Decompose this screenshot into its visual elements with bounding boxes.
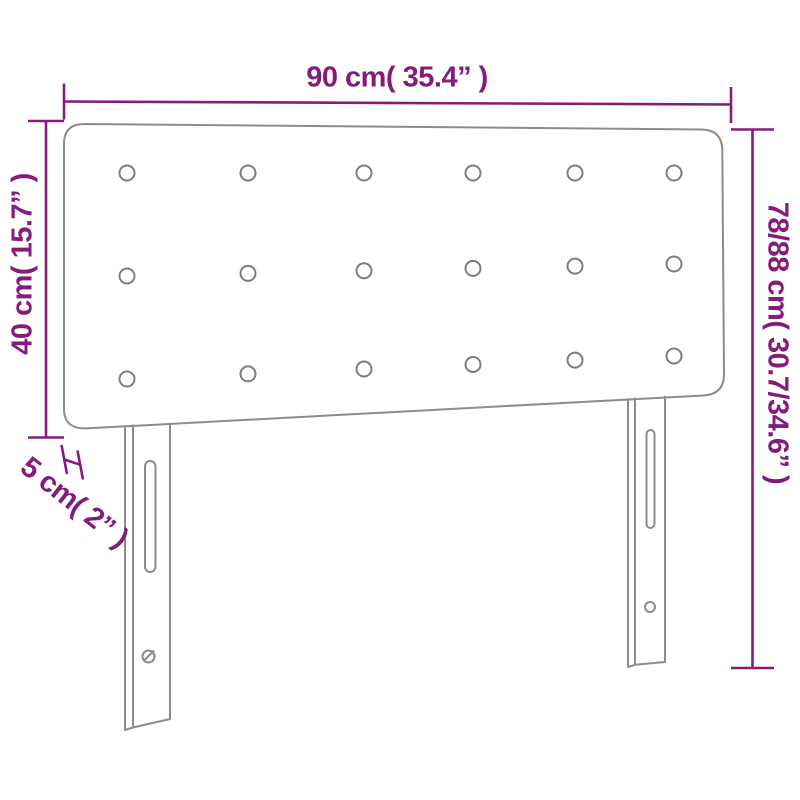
- right-leg-screw-hole: [645, 602, 655, 612]
- tufting-button: [241, 266, 256, 281]
- tufting-button: [120, 372, 135, 387]
- tufting-button: [357, 362, 372, 377]
- tufting-button: [241, 166, 256, 181]
- tufting-button: [466, 166, 481, 181]
- tufting-button: [568, 166, 583, 181]
- left-leg-slot: [145, 461, 156, 572]
- tufting-button: [241, 366, 256, 381]
- tufting-button: [466, 357, 481, 372]
- width-dimension-label: 90 cm( 35.4” ): [306, 62, 488, 95]
- tufting-button: [357, 166, 372, 181]
- tufting-button: [357, 263, 372, 278]
- total-height-dimension-label: 78/88 cm( 30.7/34.6” ): [761, 202, 794, 484]
- headboard-panel: [64, 124, 724, 428]
- tufting-button: [568, 353, 583, 368]
- panel-height-dimension-label: 40 cm( 15.7” ): [7, 173, 40, 355]
- dimension-diagram: 90 cm( 35.4” ) 40 cm( 15.7” ) 78/88 cm( …: [0, 0, 800, 800]
- left-leg-outline: [125, 424, 170, 730]
- right-leg: [628, 397, 665, 667]
- tufting-button: [667, 257, 682, 272]
- tufting-button: [667, 349, 682, 364]
- headboard-line-drawing: [0, 0, 800, 800]
- tufting-button: [466, 261, 481, 276]
- tufting-button: [120, 269, 135, 284]
- left-leg: [125, 424, 170, 730]
- tufting-button: [120, 166, 135, 181]
- right-leg-slot: [647, 430, 655, 528]
- tufting-button: [667, 166, 682, 181]
- tufting-button: [568, 259, 583, 274]
